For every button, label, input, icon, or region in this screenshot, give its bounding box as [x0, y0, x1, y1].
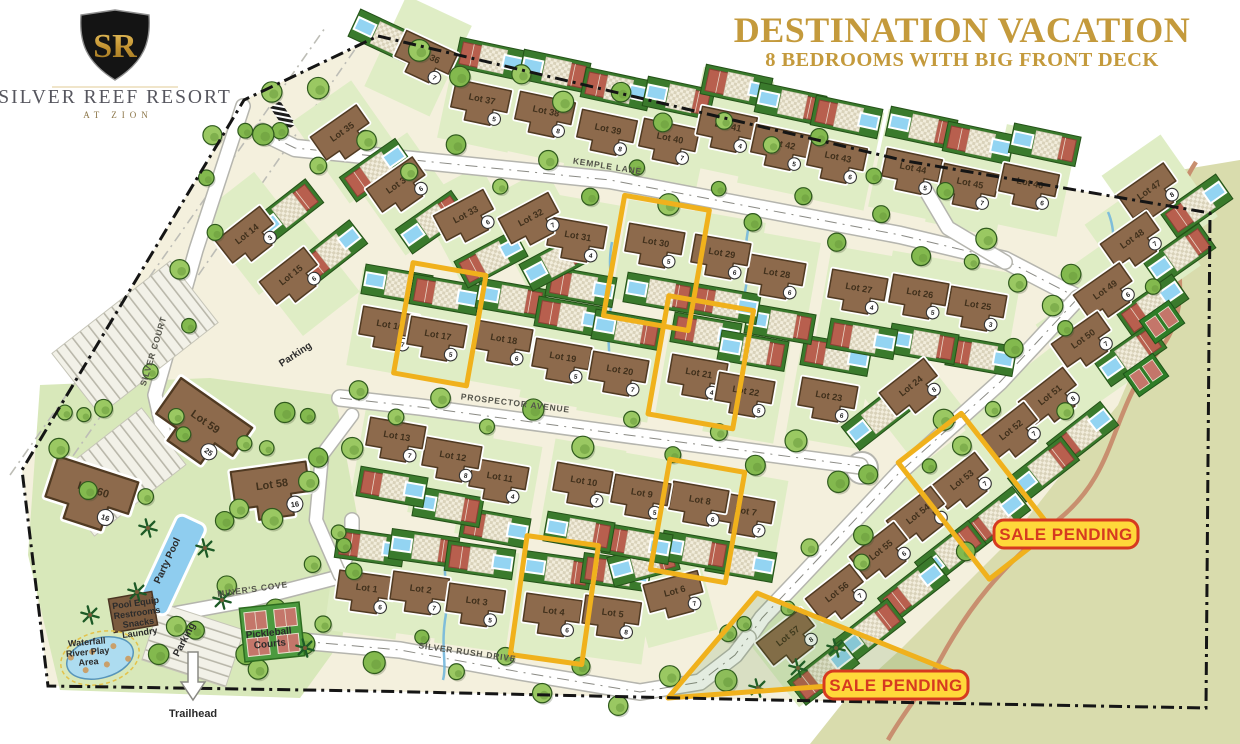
site-map-page: Lot 16Lot 27Lot 35Lot 46Lot 58Lot 67Lot … [0, 0, 1240, 744]
sale-pending-badge: SALE PENDING [824, 671, 968, 699]
sale-pending-label: SALE PENDING [829, 676, 963, 695]
map-layers: Lot 16Lot 27Lot 35Lot 46Lot 58Lot 67Lot … [10, 0, 1240, 744]
sale-pending-label: SALE PENDING [999, 525, 1133, 544]
resort-site-map: Lot 16Lot 27Lot 35Lot 46Lot 58Lot 67Lot … [0, 0, 1240, 744]
tree [203, 126, 223, 147]
logo-tagline: AT ZION [83, 110, 153, 120]
amenity-label: Trailhead [169, 708, 217, 720]
sale-pending-badge: SALE PENDING [994, 520, 1138, 548]
tree [609, 696, 630, 717]
unit-count: 16 [290, 499, 300, 509]
page-subtitle: 8 BEDROOMS WITH BIG FRONT DECK [765, 49, 1158, 71]
logo-monogram: SR [93, 28, 137, 65]
headline: DESTINATION VACATION 8 BEDROOMS WITH BIG… [734, 10, 1190, 71]
resort-logo: SR SILVER REEF RESORT AT ZION [0, 10, 232, 120]
logo-name: SILVER REEF RESORT [0, 87, 232, 108]
page-title: DESTINATION VACATION [734, 10, 1190, 50]
